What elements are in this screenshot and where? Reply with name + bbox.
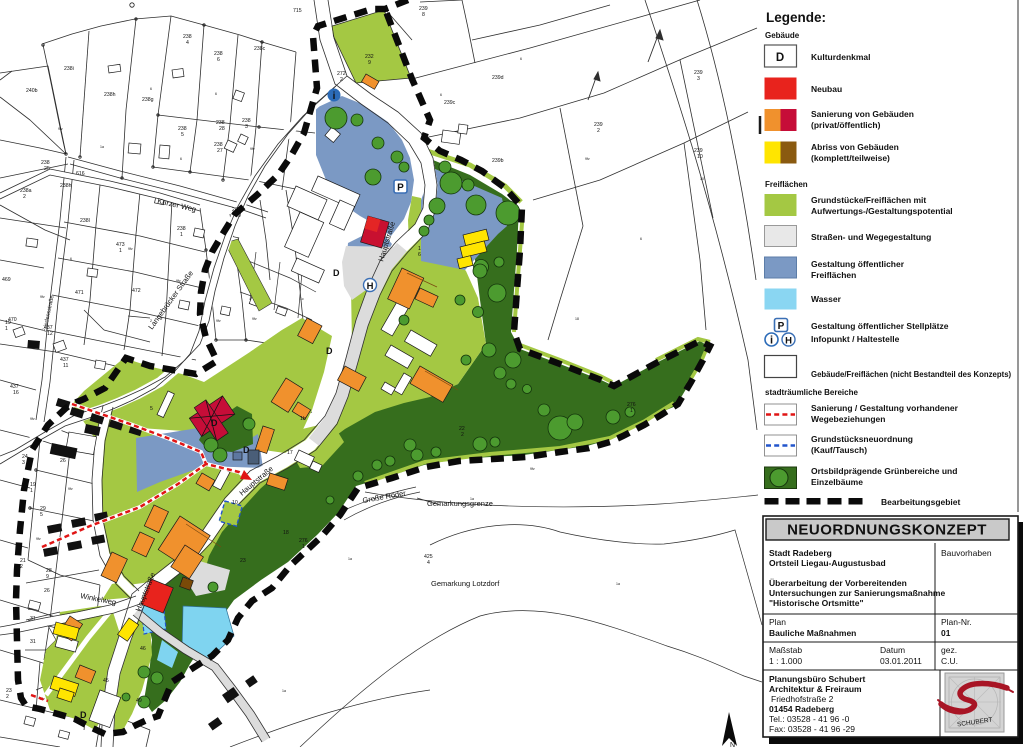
svg-text:1a: 1a bbox=[348, 557, 352, 561]
svg-text:stadträumliche Bereiche: stadträumliche Bereiche bbox=[765, 388, 858, 397]
svg-text:1: 1 bbox=[180, 232, 183, 238]
svg-text:Gebäude: Gebäude bbox=[765, 31, 800, 40]
svg-text:Plan: Plan bbox=[769, 617, 786, 627]
svg-text:1a: 1a bbox=[282, 689, 286, 693]
svg-text:9fv: 9fv bbox=[250, 147, 255, 151]
svg-text:Straßen- und Wegegestaltung: Straßen- und Wegegestaltung bbox=[811, 232, 931, 242]
svg-text:472: 472 bbox=[132, 288, 141, 294]
svg-text:D: D bbox=[243, 445, 250, 455]
svg-text:5: 5 bbox=[150, 406, 153, 412]
svg-text:Bauliche Maßnahmen: Bauliche Maßnahmen bbox=[769, 628, 856, 638]
svg-text:3: 3 bbox=[22, 460, 25, 466]
svg-text:Maßstab: Maßstab bbox=[769, 645, 802, 655]
svg-text:238h: 238h bbox=[104, 92, 116, 98]
svg-text:6: 6 bbox=[440, 93, 442, 97]
svg-text:D: D bbox=[326, 346, 333, 356]
svg-text:6: 6 bbox=[520, 57, 522, 61]
svg-text:5: 5 bbox=[181, 132, 184, 138]
svg-text:03.01.2011: 03.01.2011 bbox=[880, 656, 922, 666]
svg-text:471: 471 bbox=[75, 290, 84, 296]
svg-text:01454 Radeberg: 01454 Radeberg bbox=[769, 704, 834, 714]
svg-text:27: 27 bbox=[217, 148, 223, 154]
svg-text:6: 6 bbox=[70, 257, 72, 261]
svg-text:9fv: 9fv bbox=[252, 317, 257, 321]
svg-text:16: 16 bbox=[13, 390, 19, 396]
svg-text:1a: 1a bbox=[100, 145, 104, 149]
svg-text:9fv: 9fv bbox=[30, 417, 35, 421]
svg-text:Wasser: Wasser bbox=[811, 294, 842, 304]
svg-text:1 : 1.000: 1 : 1.000 bbox=[769, 656, 802, 666]
svg-text:Friedhofstraße 2: Friedhofstraße 2 bbox=[771, 694, 834, 704]
svg-text:Plan-Nr.: Plan-Nr. bbox=[941, 617, 972, 627]
svg-text:gez.: gez. bbox=[941, 645, 957, 655]
svg-text:2: 2 bbox=[23, 194, 26, 200]
svg-text:239d: 239d bbox=[492, 75, 504, 81]
svg-text:Ortsteil Liegau-Augustusbad: Ortsteil Liegau-Augustusbad bbox=[769, 558, 886, 568]
svg-text:Sanierung von Gebäuden: Sanierung von Gebäuden bbox=[811, 109, 914, 119]
svg-text:01: 01 bbox=[941, 628, 951, 638]
svg-text:10: 10 bbox=[700, 177, 704, 181]
svg-text:Gestaltung öffentlicher Stellp: Gestaltung öffentlicher Stellplätze bbox=[811, 321, 949, 331]
svg-text:1: 1 bbox=[5, 326, 8, 332]
svg-text:(komplett/teilweise): (komplett/teilweise) bbox=[811, 153, 890, 163]
svg-text:4: 4 bbox=[186, 40, 189, 46]
svg-text:1a: 1a bbox=[616, 582, 620, 586]
svg-text:N: N bbox=[730, 742, 735, 747]
svg-text:2: 2 bbox=[6, 694, 9, 700]
svg-text:H: H bbox=[785, 335, 792, 346]
svg-text:239c: 239c bbox=[444, 100, 456, 106]
svg-text:Untersuchungen zur Sanierungsm: Untersuchungen zur Sanierungsmaßnahme bbox=[769, 588, 945, 598]
svg-text:Legende:: Legende: bbox=[766, 10, 826, 25]
svg-text:D: D bbox=[333, 268, 340, 278]
svg-text:9fv: 9fv bbox=[58, 127, 63, 131]
svg-text:10: 10 bbox=[232, 500, 238, 506]
svg-text:5: 5 bbox=[40, 512, 43, 518]
svg-text:Überarbeitung der Vorbereitend: Überarbeitung der Vorbereitenden bbox=[769, 578, 907, 588]
svg-text:18: 18 bbox=[283, 530, 289, 536]
svg-text:Freiflächen: Freiflächen bbox=[811, 270, 856, 280]
svg-text:i: i bbox=[770, 335, 773, 347]
svg-text:6: 6 bbox=[180, 157, 182, 161]
svg-text:45: 45 bbox=[103, 678, 109, 684]
svg-text:9: 9 bbox=[46, 574, 49, 580]
svg-text:4: 4 bbox=[427, 560, 430, 566]
svg-text:1: 1 bbox=[30, 488, 33, 494]
svg-text:Ortsbildprägende Grünbereiche: Ortsbildprägende Grünbereiche und bbox=[811, 466, 957, 476]
svg-text:1: 1 bbox=[630, 408, 633, 414]
svg-text:9fv: 9fv bbox=[530, 467, 535, 471]
svg-text:10: 10 bbox=[697, 154, 703, 160]
svg-text:"Historische Ortsmitte": "Historische Ortsmitte" bbox=[769, 598, 864, 608]
svg-text:18: 18 bbox=[575, 317, 579, 321]
svg-text:NEUORDNUNGSKONZEPT: NEUORDNUNGSKONZEPT bbox=[787, 522, 987, 539]
svg-text:239b: 239b bbox=[492, 158, 504, 164]
svg-text:2: 2 bbox=[461, 432, 464, 438]
svg-text:26: 26 bbox=[44, 588, 50, 594]
svg-text:Datum: Datum bbox=[880, 645, 905, 655]
svg-text:240b: 240b bbox=[26, 88, 38, 94]
svg-text:6: 6 bbox=[418, 252, 421, 258]
svg-text:8: 8 bbox=[422, 12, 425, 18]
svg-text:1c: 1c bbox=[300, 297, 304, 301]
svg-text:6: 6 bbox=[150, 87, 152, 91]
svg-text:Bauvorhaben: Bauvorhaben bbox=[941, 548, 992, 558]
svg-text:1: 1 bbox=[119, 248, 122, 254]
svg-text:Kulturdenkmal: Kulturdenkmal bbox=[811, 52, 871, 62]
svg-text:Tel.: 03528 - 41 96 -0: Tel.: 03528 - 41 96 -0 bbox=[769, 714, 850, 724]
svg-text:1b: 1b bbox=[300, 416, 306, 422]
svg-text:(Kauf/Tausch): (Kauf/Tausch) bbox=[811, 445, 867, 455]
svg-text:238l: 238l bbox=[80, 218, 90, 224]
svg-text:11: 11 bbox=[63, 363, 68, 369]
svg-text:238i: 238i bbox=[64, 66, 74, 72]
svg-text:238h: 238h bbox=[60, 183, 72, 189]
svg-text:10: 10 bbox=[235, 213, 241, 219]
svg-text:D: D bbox=[211, 418, 218, 428]
svg-text:Fax: 03528 - 41 96 -29: Fax: 03528 - 41 96 -29 bbox=[769, 724, 855, 734]
svg-text:9: 9 bbox=[368, 60, 371, 66]
svg-text:9fv: 9fv bbox=[128, 247, 133, 251]
svg-text:Wegebeziehungen: Wegebeziehungen bbox=[811, 414, 885, 424]
svg-text:C.U.: C.U. bbox=[941, 656, 958, 666]
svg-text:Gemarkungsgrenze: Gemarkungsgrenze bbox=[427, 499, 493, 508]
svg-text:(privat/öffentlich): (privat/öffentlich) bbox=[811, 120, 881, 130]
svg-text:28: 28 bbox=[219, 126, 225, 132]
svg-text:Infopunkt / Haltestelle: Infopunkt / Haltestelle bbox=[811, 334, 900, 344]
svg-text:Architektur & Freiraum: Architektur & Freiraum bbox=[769, 684, 862, 694]
svg-text:Neubau: Neubau bbox=[811, 84, 842, 94]
svg-text:H: H bbox=[367, 281, 374, 292]
svg-text:9fv: 9fv bbox=[68, 487, 73, 491]
svg-text:6: 6 bbox=[217, 57, 220, 63]
svg-text:3: 3 bbox=[697, 76, 700, 82]
svg-text:Gemarkung Lotzdorf: Gemarkung Lotzdorf bbox=[431, 579, 500, 588]
svg-text:3: 3 bbox=[245, 124, 248, 130]
svg-text:Planungsbüro Schubert: Planungsbüro Schubert bbox=[769, 674, 866, 684]
svg-text:26: 26 bbox=[60, 458, 66, 464]
svg-text:238c: 238c bbox=[254, 46, 266, 52]
svg-text:6: 6 bbox=[215, 92, 217, 96]
svg-text:6: 6 bbox=[640, 237, 642, 241]
svg-text:Grundstücke/Freiflächen mit: Grundstücke/Freiflächen mit bbox=[811, 195, 926, 205]
svg-text:D: D bbox=[80, 710, 87, 720]
svg-text:D: D bbox=[776, 52, 784, 64]
svg-text:P: P bbox=[397, 183, 404, 194]
svg-text:Gebäude/Freiflächen (nicht Bes: Gebäude/Freiflächen (nicht Bestandteil d… bbox=[811, 370, 1012, 379]
svg-text:Sanierung / Gestaltung vorhand: Sanierung / Gestaltung vorhandener bbox=[811, 403, 959, 413]
svg-text:Bearbeitungsgebiet: Bearbeitungsgebiet bbox=[881, 497, 961, 507]
svg-text:i: i bbox=[333, 91, 336, 102]
svg-text:470: 470 bbox=[8, 317, 17, 323]
svg-text:2: 2 bbox=[340, 77, 343, 83]
svg-text:Stadt Radeberg: Stadt Radeberg bbox=[769, 548, 832, 558]
svg-text:Einzelbäume: Einzelbäume bbox=[811, 477, 863, 487]
svg-text:469: 469 bbox=[2, 277, 11, 283]
svg-text:46: 46 bbox=[140, 646, 146, 652]
svg-text:17: 17 bbox=[287, 450, 293, 456]
svg-text:9fv: 9fv bbox=[40, 295, 45, 299]
svg-text:Abriss von Gebäuden: Abriss von Gebäuden bbox=[811, 142, 899, 152]
svg-text:9fv: 9fv bbox=[36, 537, 41, 541]
svg-text:23: 23 bbox=[240, 558, 246, 564]
svg-text:9fv: 9fv bbox=[216, 319, 221, 323]
svg-text:2: 2 bbox=[597, 128, 600, 134]
svg-text:238g: 238g bbox=[142, 97, 154, 103]
svg-text:9fv: 9fv bbox=[585, 157, 590, 161]
svg-text:Grundstücksneuordnung: Grundstücksneuordnung bbox=[811, 434, 913, 444]
svg-text:715: 715 bbox=[293, 8, 302, 14]
svg-text:Gestaltung öffentlicher: Gestaltung öffentlicher bbox=[811, 259, 905, 269]
svg-text:49: 49 bbox=[136, 698, 142, 704]
svg-text:Aufwertungs-/Gestaltungspotent: Aufwertungs-/Gestaltungspotential bbox=[811, 206, 953, 216]
svg-text:31: 31 bbox=[30, 639, 36, 645]
svg-text:P: P bbox=[778, 321, 785, 332]
svg-text:Freiflächen: Freiflächen bbox=[765, 180, 808, 189]
svg-text:1: 1 bbox=[302, 544, 305, 550]
